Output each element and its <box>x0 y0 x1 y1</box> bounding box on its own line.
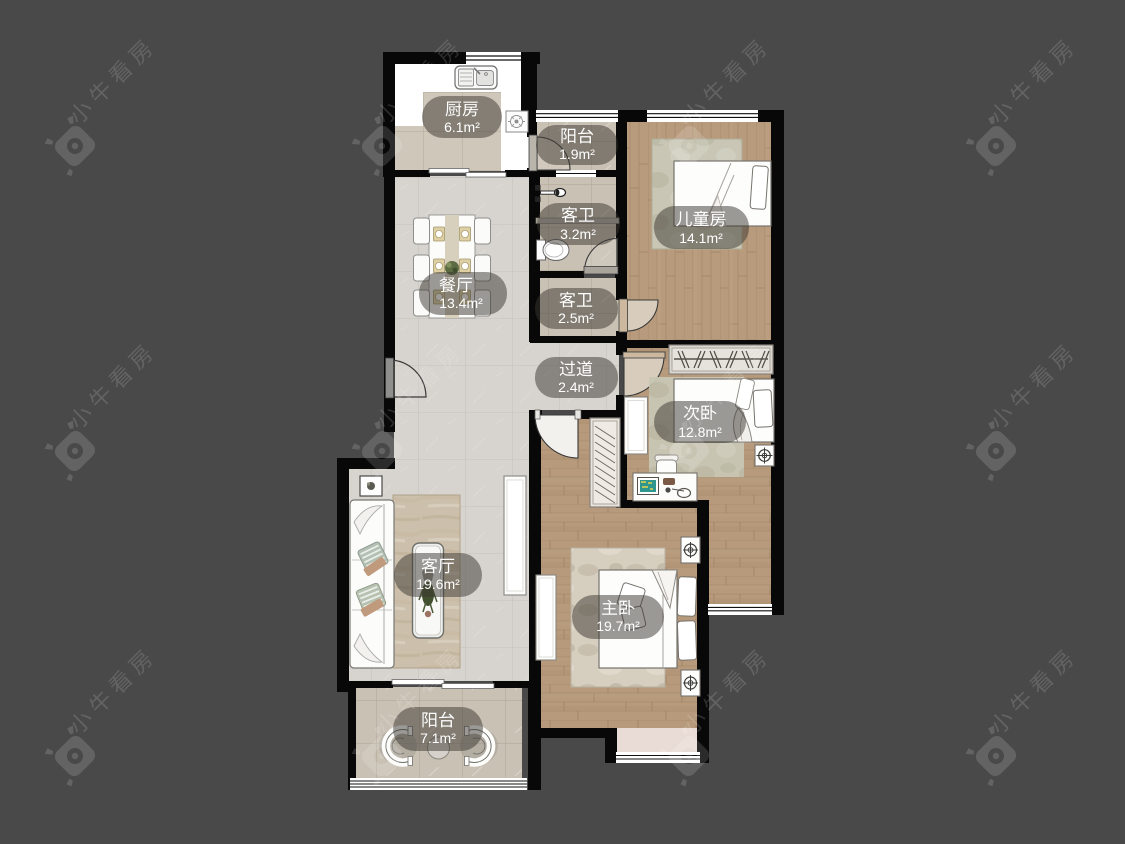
svg-text:14.1m²: 14.1m² <box>679 230 723 246</box>
svg-text:19.7m²: 19.7m² <box>596 618 640 634</box>
svg-text:3.2m²: 3.2m² <box>560 226 596 242</box>
svg-text:13.4m²: 13.4m² <box>439 295 483 311</box>
svg-text:2.5m²: 2.5m² <box>558 310 594 326</box>
svg-text:1.9m²: 1.9m² <box>559 146 595 162</box>
svg-text:2.4m²: 2.4m² <box>558 379 594 395</box>
svg-text:19.6m²: 19.6m² <box>416 576 460 592</box>
svg-text:6.1m²: 6.1m² <box>444 119 480 135</box>
svg-text:7.1m²: 7.1m² <box>420 730 456 746</box>
